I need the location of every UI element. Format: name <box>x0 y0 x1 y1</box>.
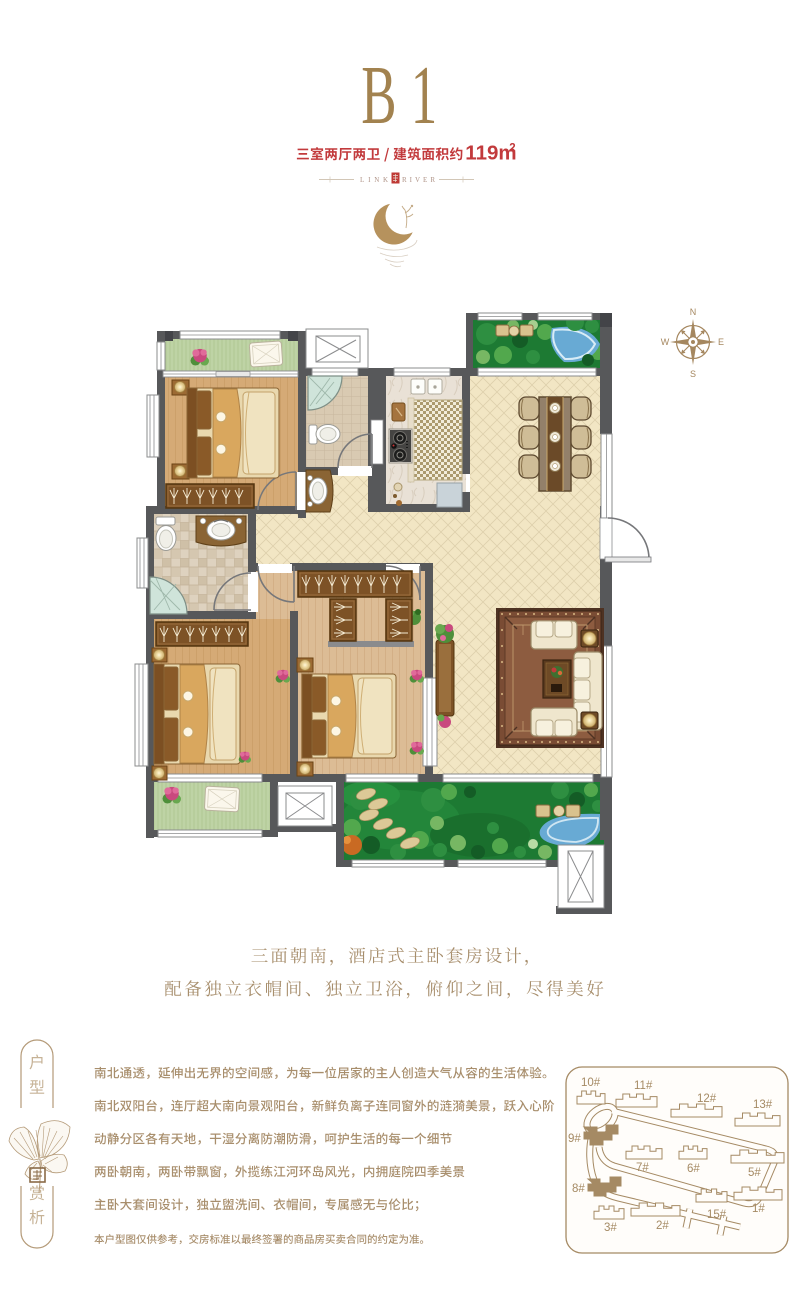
svg-text:15#: 15# <box>707 1209 727 1221</box>
svg-text:LINK: LINK <box>360 176 392 184</box>
svg-text:11#: 11# <box>634 1080 653 1092</box>
svg-text:2#: 2# <box>656 1220 669 1232</box>
svg-text:1: 1 <box>411 49 437 142</box>
svg-text:RIVER: RIVER <box>402 176 438 184</box>
svg-text:7#: 7# <box>636 1162 649 1174</box>
svg-text:W: W <box>661 337 670 347</box>
svg-text:B: B <box>361 49 396 142</box>
svg-text:3#: 3# <box>604 1222 617 1234</box>
svg-text:8#: 8# <box>572 1183 585 1195</box>
svg-text:12#: 12# <box>697 1093 717 1105</box>
svg-text:E: E <box>718 337 724 347</box>
svg-text:1#: 1# <box>752 1203 765 1215</box>
svg-text:5#: 5# <box>748 1167 761 1179</box>
svg-text:6#: 6# <box>687 1163 700 1175</box>
svg-text:N: N <box>690 307 697 317</box>
svg-text:9#: 9# <box>568 1133 581 1145</box>
svg-text:S: S <box>690 369 696 379</box>
svg-text:2: 2 <box>509 143 515 155</box>
svg-text:10#: 10# <box>581 1077 601 1089</box>
svg-text:13#: 13# <box>753 1099 773 1111</box>
